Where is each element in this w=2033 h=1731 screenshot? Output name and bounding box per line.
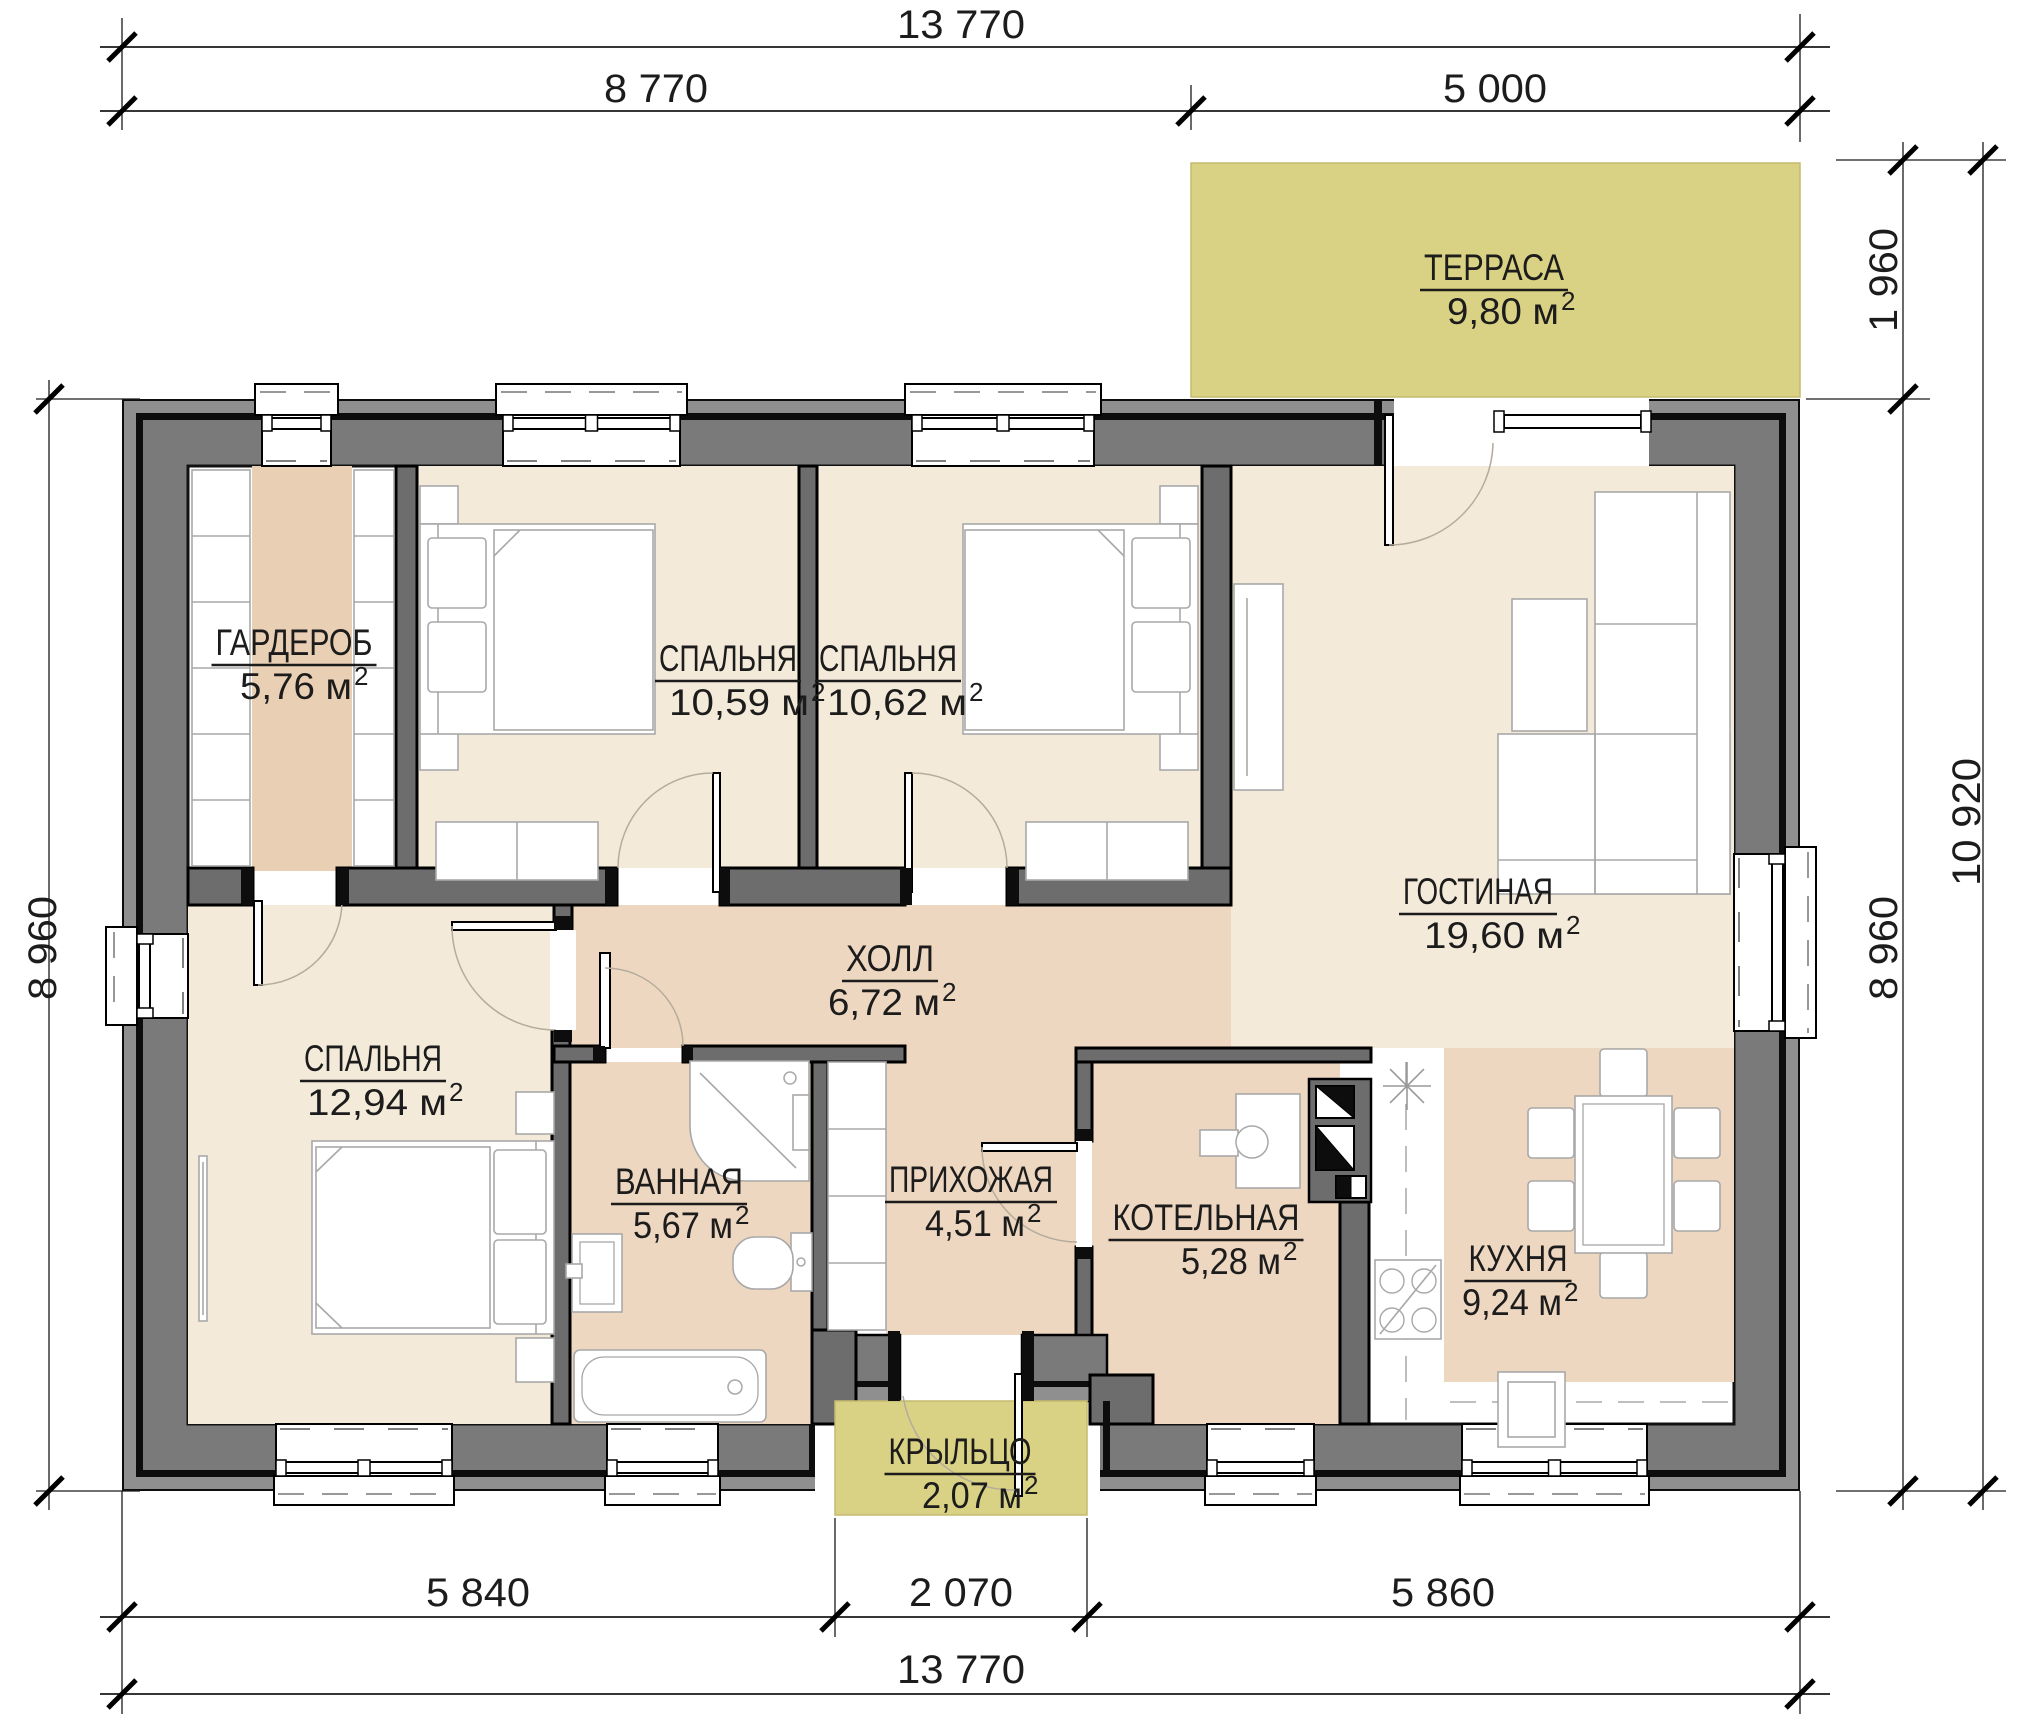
svg-text:9,24 м: 9,24 м — [1462, 1282, 1562, 1323]
svg-text:6,72 м: 6,72 м — [828, 982, 940, 1023]
svg-text:8 960: 8 960 — [1862, 896, 1906, 1000]
svg-text:КРЫЛЬЦО: КРЫЛЬЦО — [889, 1431, 1032, 1472]
svg-text:9,80 м: 9,80 м — [1447, 291, 1559, 332]
svg-text:ПРИХОЖАЯ: ПРИХОЖАЯ — [889, 1159, 1053, 1200]
svg-text:ХОЛЛ: ХОЛЛ — [846, 938, 934, 979]
svg-text:10,62 м: 10,62 м — [827, 682, 967, 723]
svg-text:2: 2 — [942, 977, 956, 1007]
svg-text:2: 2 — [1566, 910, 1580, 940]
svg-text:5,76 м: 5,76 м — [240, 666, 352, 707]
svg-text:5,28 м: 5,28 м — [1181, 1241, 1281, 1282]
svg-text:12,94 м: 12,94 м — [307, 1082, 447, 1123]
svg-text:10 920: 10 920 — [1945, 758, 1989, 886]
svg-text:2: 2 — [449, 1077, 463, 1107]
svg-text:2: 2 — [1027, 1198, 1041, 1228]
svg-text:5 860: 5 860 — [1391, 1571, 1495, 1615]
svg-text:КУХНЯ: КУХНЯ — [1469, 1238, 1568, 1279]
svg-text:2 070: 2 070 — [909, 1571, 1013, 1615]
svg-text:2: 2 — [969, 677, 983, 707]
svg-text:КОТЕЛЬНАЯ: КОТЕЛЬНАЯ — [1113, 1197, 1300, 1238]
svg-text:1 960: 1 960 — [1862, 228, 1906, 332]
svg-text:8 960: 8 960 — [21, 896, 65, 1000]
svg-text:13 770: 13 770 — [897, 3, 1025, 47]
svg-text:ГАРДЕРОБ: ГАРДЕРОБ — [216, 622, 373, 663]
svg-text:СПАЛЬНЯ: СПАЛЬНЯ — [659, 638, 797, 679]
svg-text:ГОСТИНАЯ: ГОСТИНАЯ — [1403, 871, 1553, 912]
svg-text:8 770: 8 770 — [604, 67, 708, 111]
svg-text:10,59 м: 10,59 м — [669, 682, 809, 723]
svg-text:СПАЛЬНЯ: СПАЛЬНЯ — [819, 638, 957, 679]
svg-text:СПАЛЬНЯ: СПАЛЬНЯ — [304, 1038, 442, 1079]
svg-text:ВАННАЯ: ВАННАЯ — [615, 1161, 743, 1202]
svg-text:2: 2 — [1283, 1236, 1297, 1266]
svg-text:2: 2 — [1561, 286, 1575, 316]
svg-text:5 000: 5 000 — [1443, 67, 1547, 111]
svg-text:ТЕРРАСА: ТЕРРАСА — [1424, 247, 1564, 288]
svg-text:2: 2 — [1564, 1277, 1578, 1307]
svg-text:4,51 м: 4,51 м — [925, 1203, 1025, 1244]
svg-text:5 840: 5 840 — [426, 1571, 530, 1615]
svg-text:2: 2 — [354, 661, 368, 691]
svg-text:2,07 м: 2,07 м — [922, 1475, 1022, 1516]
svg-text:2: 2 — [735, 1200, 749, 1230]
svg-text:13 770: 13 770 — [897, 1648, 1025, 1692]
svg-text:5,67 м: 5,67 м — [633, 1205, 733, 1246]
svg-text:2: 2 — [1024, 1470, 1038, 1500]
svg-text:19,60 м: 19,60 м — [1424, 915, 1564, 956]
